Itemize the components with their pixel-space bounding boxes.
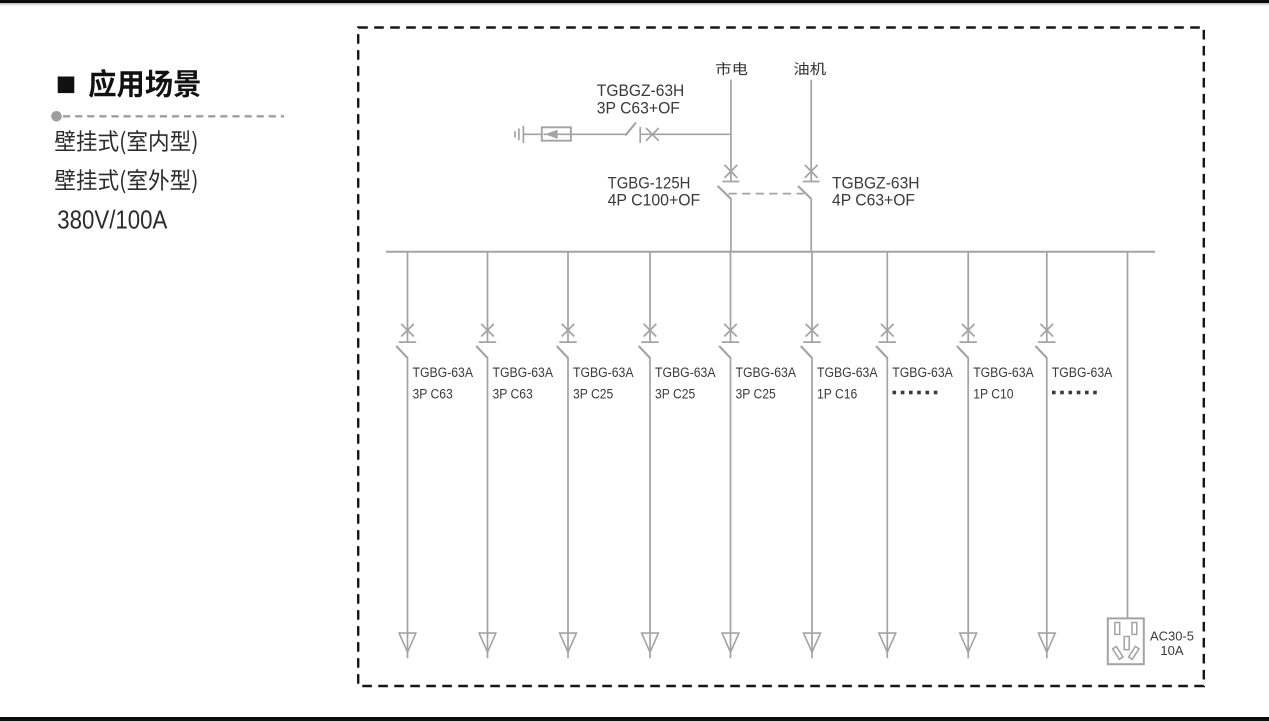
svg-text:380V/100A: 380V/100A <box>57 204 168 234</box>
svg-text:TGBG-63A: TGBG-63A <box>493 365 554 380</box>
svg-text:TGBG-63A: TGBG-63A <box>655 365 716 380</box>
svg-text:TGBGZ-63H: TGBGZ-63H <box>597 81 685 100</box>
svg-text:3P C63: 3P C63 <box>413 386 453 401</box>
svg-text:3P C25: 3P C25 <box>655 386 695 401</box>
svg-text:4P C100+OF: 4P C100+OF <box>608 190 701 209</box>
svg-text:1P C10: 1P C10 <box>973 386 1013 401</box>
svg-text:3P C63: 3P C63 <box>493 386 533 401</box>
svg-text:3P C63+OF: 3P C63+OF <box>597 98 680 117</box>
svg-text:TGBG-63A: TGBG-63A <box>413 365 474 380</box>
svg-text:TGBG-63A: TGBG-63A <box>892 365 953 380</box>
svg-text:1P C16: 1P C16 <box>817 386 857 401</box>
svg-text:TGBG-63A: TGBG-63A <box>817 365 878 380</box>
svg-text:3P C25: 3P C25 <box>736 386 776 401</box>
svg-text:TGBG-63A: TGBG-63A <box>736 365 797 380</box>
svg-text:AC30-5: AC30-5 <box>1150 629 1194 644</box>
svg-text:TGBG-63A: TGBG-63A <box>1052 365 1113 380</box>
svg-text:10A: 10A <box>1160 643 1183 658</box>
svg-text:3P C25: 3P C25 <box>573 386 613 401</box>
svg-text:TGBG-63A: TGBG-63A <box>573 365 634 380</box>
svg-text:TGBG-63A: TGBG-63A <box>973 365 1034 380</box>
svg-text:4P C63+OF: 4P C63+OF <box>832 190 915 209</box>
